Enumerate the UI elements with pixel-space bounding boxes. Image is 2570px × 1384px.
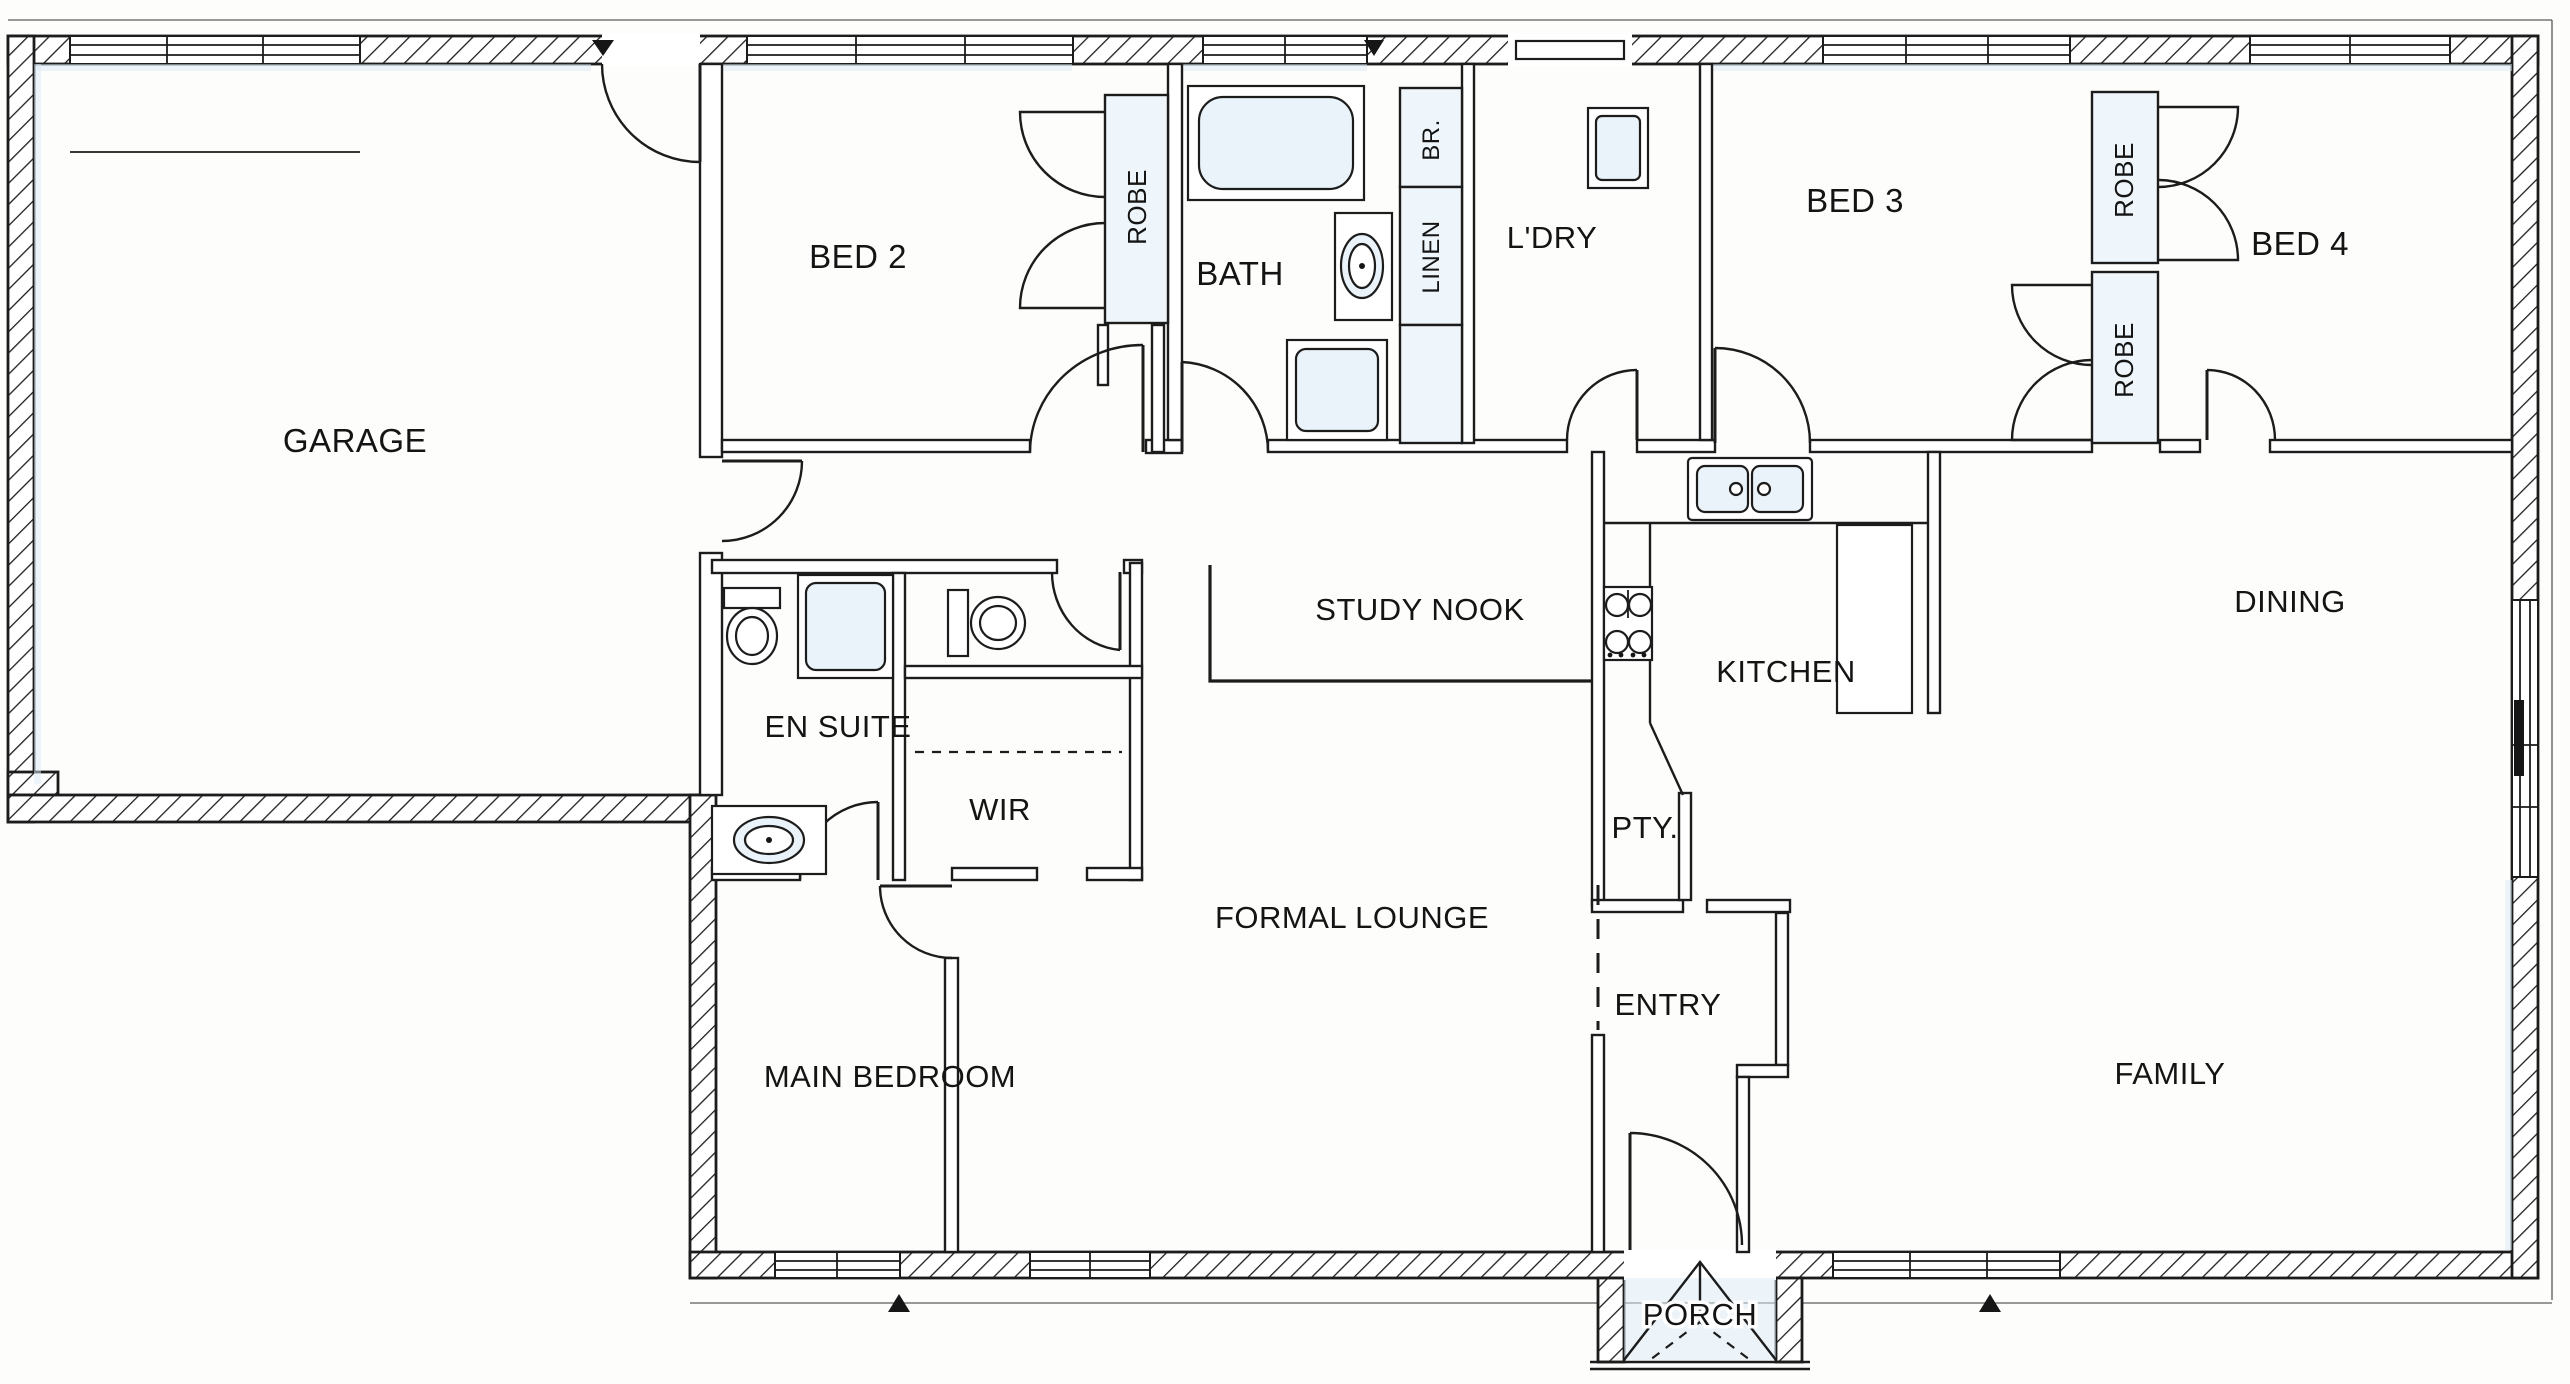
front-door <box>1630 1133 1742 1250</box>
room-label-laundry: L'DRY <box>1507 220 1598 255</box>
room-label-bed2: BED 2 <box>809 238 907 275</box>
room-label-robe-bed3: ROBE <box>2109 322 2139 398</box>
room-label-bed3: BED 3 <box>1806 182 1904 219</box>
hall-wall <box>722 440 1030 452</box>
family-window <box>1833 1252 2060 1278</box>
porch-left-wall <box>1598 1278 1624 1362</box>
bed2-robe-doors <box>1020 112 1105 308</box>
room-label-entry: ENTRY <box>1614 987 1721 1022</box>
garage-bed2-wall <box>700 64 722 457</box>
room-label-bath: BATH <box>1196 255 1284 292</box>
hall-wall <box>2160 440 2200 452</box>
wc-toilet <box>948 590 1025 656</box>
garage-bottom-wall <box>8 795 712 822</box>
bath-door <box>1182 362 1268 452</box>
eaves-lines <box>8 20 2552 1303</box>
wc-door <box>1052 572 1120 650</box>
room-label-formal-lounge: FORMAL LOUNGE <box>1215 900 1489 935</box>
laundry-door <box>1567 370 1637 440</box>
store-cupboard <box>1400 325 1462 443</box>
room-label-robe-bed4: ROBE <box>2109 142 2139 218</box>
hall-wall <box>1810 440 2092 452</box>
kitchen-dining-wall <box>1928 452 1940 713</box>
bed2-door <box>1030 345 1143 452</box>
kitchen-sink <box>1688 458 1812 520</box>
laundry-door-slab <box>1516 41 1624 59</box>
ensuite-shower <box>798 575 893 678</box>
bed3-door <box>1715 348 1810 443</box>
ensuite-top-wall <box>712 560 1057 573</box>
bed4-door <box>2207 370 2275 440</box>
label-linen-cupboard: LINEN <box>1418 220 1445 293</box>
main-bedroom-door <box>880 886 952 958</box>
room-label-bed4: BED 4 <box>2251 225 2349 262</box>
room-labels: GARAGE BED 2 ROBE BATH BR. LINEN L'DRY B… <box>283 119 2349 1332</box>
room-label-family: FAMILY <box>2115 1056 2226 1091</box>
bath-shower <box>1287 340 1387 440</box>
garage-hall-wall <box>700 553 722 795</box>
room-label-porch: PORCH <box>1643 1297 1757 1332</box>
bathtub <box>1188 86 1364 200</box>
laundry-bed3-wall <box>1700 64 1712 440</box>
dining-family-window <box>2512 600 2538 877</box>
bedroom-lounge-wall <box>945 958 958 1252</box>
dining-top-wall <box>2270 440 2512 452</box>
bed3-robe-doors <box>2012 285 2092 440</box>
main-bedroom-window <box>775 1252 900 1278</box>
entry-left-wall <box>1592 1035 1604 1252</box>
room-label-garage: GARAGE <box>283 422 427 459</box>
room-label-wir: WIR <box>969 792 1031 827</box>
room-label-main-bedroom: MAIN BEDROOM <box>764 1059 1016 1094</box>
entry-jog-wall <box>1737 1065 1788 1077</box>
family-left-wall <box>1776 913 1788 1065</box>
garage-rear-door-opening <box>602 34 700 66</box>
wir-bottom-wall <box>952 868 1037 880</box>
entry-right-wall <box>1737 1077 1749 1252</box>
wir-right-wall <box>1130 563 1142 880</box>
bath-window <box>1203 36 1367 64</box>
pantry-splay-wall <box>1650 723 1683 795</box>
cooktop <box>1604 587 1652 660</box>
room-label-robe-bed2: ROBE <box>1122 169 1152 245</box>
bed4-window <box>2250 36 2450 64</box>
kitchen-left-wall <box>1592 452 1604 905</box>
fixtures <box>712 86 1812 874</box>
ensuite-vanity-basin <box>712 806 826 874</box>
pantry-right-wall <box>1679 793 1691 900</box>
windows <box>70 36 2538 1278</box>
garage-rear-door <box>602 64 700 162</box>
wc-wir-wall <box>905 666 1142 678</box>
room-label-study-nook: STUDY NOOK <box>1315 592 1524 627</box>
kitchen-bottom-wall <box>1707 900 1790 912</box>
porch-right-wall <box>1776 1278 1802 1362</box>
wir-bottom-wall <box>1087 868 1142 880</box>
bath-vanity-basin <box>1335 213 1392 320</box>
ensuite-toilet <box>724 588 780 664</box>
lounge-window <box>1030 1252 1150 1278</box>
bed3-window <box>1823 36 2070 64</box>
floor-plan-drawing: GARAGE BED 2 ROBE BATH BR. LINEN L'DRY B… <box>0 0 2570 1384</box>
porch-edge <box>1590 1362 1810 1369</box>
label-broom-cupboard: BR. <box>1418 119 1445 161</box>
garage-wall-notch <box>8 772 58 795</box>
pantry-bottom-wall <box>1592 900 1683 912</box>
hall-wall <box>1637 440 1715 452</box>
room-label-dining: DINING <box>2234 584 2346 619</box>
laundry-trough <box>1588 108 1648 188</box>
sliding-panel <box>2514 700 2524 776</box>
linen-laundry-wall <box>1462 64 1474 443</box>
room-label-ensuite: EN SUITE <box>765 709 912 744</box>
room-label-kitchen: KITCHEN <box>1716 654 1856 689</box>
room-label-pantry: PTY. <box>1612 810 1679 845</box>
floor-plan-page: GARAGE BED 2 ROBE BATH BR. LINEN L'DRY B… <box>0 0 2570 1384</box>
robe-return-wall <box>1098 325 1108 385</box>
bath-lobby-wall <box>1152 325 1164 452</box>
bottom-exterior-wall <box>690 1252 2538 1278</box>
left-exterior-wall <box>8 36 34 822</box>
garage-hall-door <box>722 461 802 541</box>
garage-window <box>70 36 360 152</box>
bed2-window <box>747 36 1073 64</box>
bed4-robe-doors <box>2158 107 2238 260</box>
bed2-bath-wall <box>1168 64 1182 440</box>
